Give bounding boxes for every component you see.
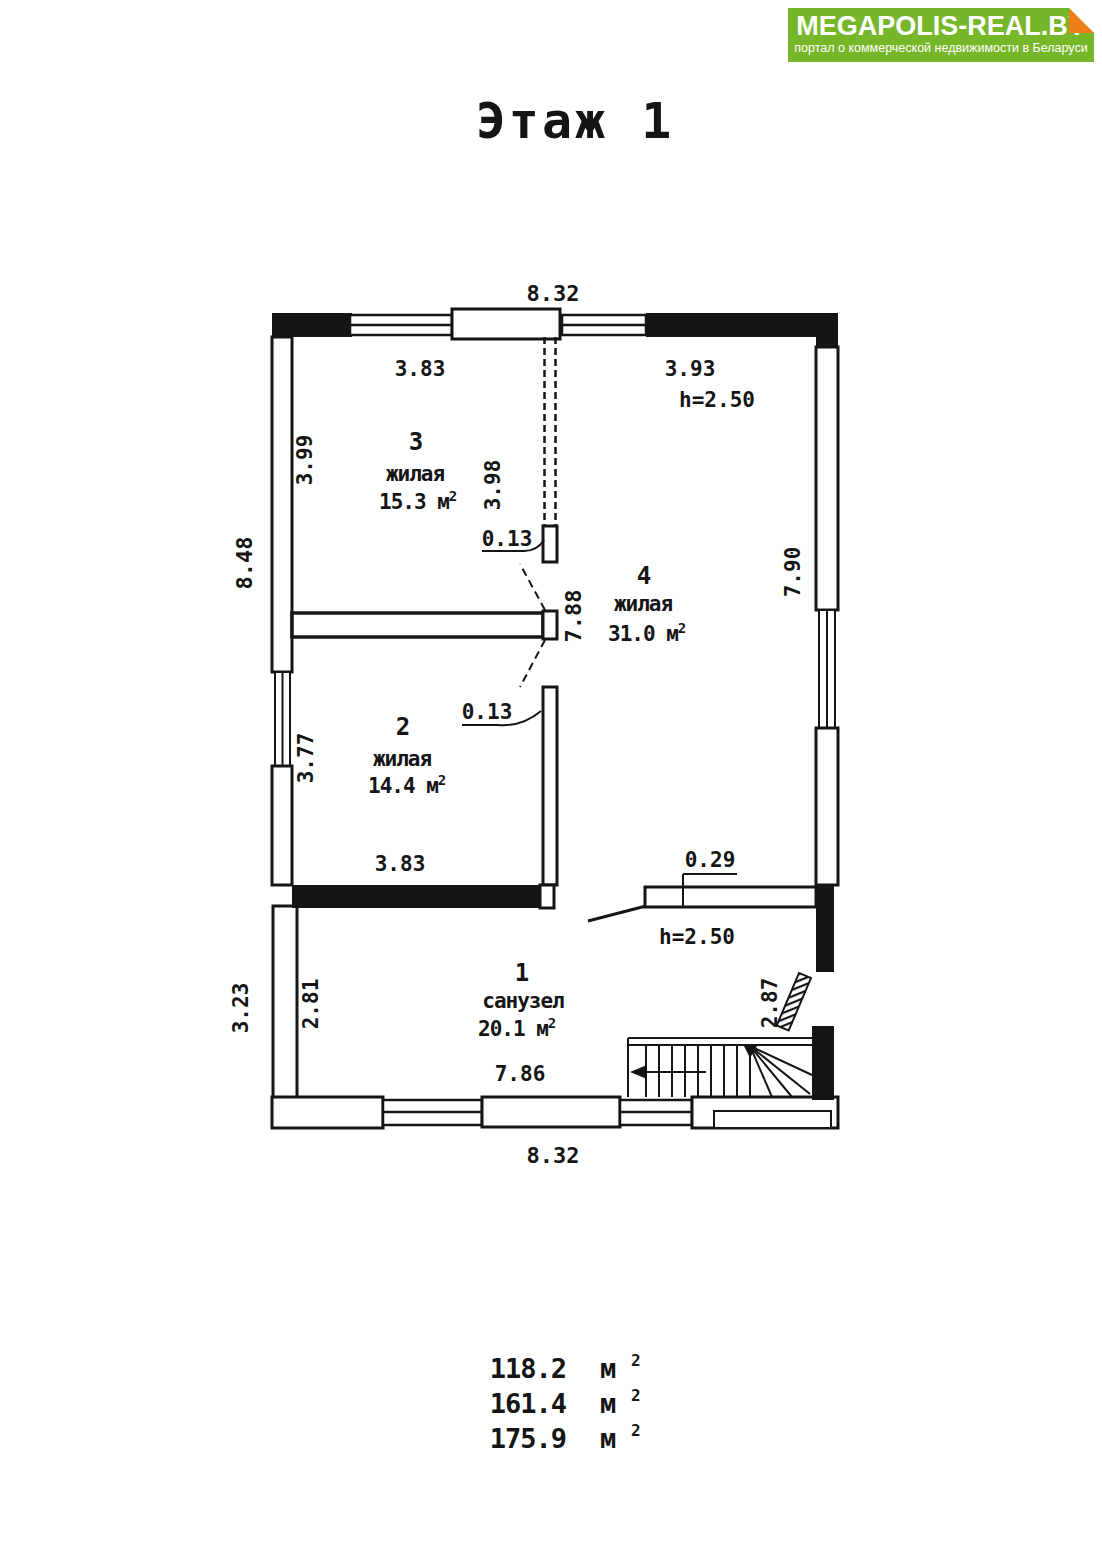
window <box>350 315 452 335</box>
window <box>562 315 646 335</box>
wall-segment <box>816 313 838 350</box>
wall-segment <box>714 1111 831 1128</box>
dim-r4-height: h=2.50 <box>679 388 755 412</box>
door-leaf <box>588 906 646 921</box>
dim-lower-left: 3.23 <box>229 983 253 1034</box>
window <box>275 672 290 768</box>
wall-segment <box>272 337 292 672</box>
total-unit: м <box>600 1353 616 1384</box>
room-3-label: 3 жилая 15.3 м2 <box>379 428 457 514</box>
room-number: 3 <box>409 428 423 456</box>
wall-segment <box>292 613 543 637</box>
dim-r4-top: 3.93 <box>665 357 716 381</box>
dim-r4-right: 7.90 <box>781 547 805 598</box>
room-area-value: 20.1 м <box>478 1017 548 1041</box>
interior-walls <box>292 337 816 921</box>
dim-r1-right: 2.87 <box>758 978 782 1029</box>
total-value: 175.9 <box>490 1423 566 1454</box>
window <box>383 1100 482 1125</box>
wall-segment <box>272 1097 383 1128</box>
room-area-value: 31.0 м <box>608 622 678 646</box>
dim-niche: 0.29 <box>685 848 736 872</box>
wall-segment <box>812 1026 834 1100</box>
room-4-label: 4 жилая 31.0 м2 <box>608 562 686 646</box>
room-number: 1 <box>515 959 529 987</box>
total-value: 118.2 <box>490 1353 566 1384</box>
winder-line <box>750 1046 792 1097</box>
dim-r1-height: h=2.50 <box>659 925 735 949</box>
window-opening <box>452 309 560 339</box>
brand-tagline: портал о коммерческой недвижимости в Бел… <box>788 41 1094 55</box>
room-number: 2 <box>396 713 410 741</box>
total-value: 161.4 <box>490 1388 567 1419</box>
partition-wall <box>543 687 557 885</box>
room-2-label: 2 жилая 14.4 м2 <box>368 713 446 798</box>
room-area-sup: 2 <box>449 488 457 504</box>
page-title: Этаж 1 <box>476 92 675 150</box>
room-area: 14.4 м2 <box>368 772 446 798</box>
wall-end-cap <box>543 611 557 639</box>
megapolis-logo-banner: MEGAPOLIS-REAL.BY портал о коммерческой … <box>788 8 1094 62</box>
direction-arrow-head <box>630 1065 647 1079</box>
wall-segment <box>645 887 816 907</box>
dim-r2-bottom: 3.83 <box>375 852 426 876</box>
window <box>819 610 835 730</box>
room-area-sup: 2 <box>678 620 686 636</box>
door-swing <box>520 564 545 610</box>
window <box>620 1100 692 1125</box>
room-area: 20.1 м2 <box>478 1015 556 1041</box>
dim-r1-width: 7.86 <box>495 1062 546 1086</box>
partition-dashed <box>545 337 556 526</box>
room-1-label: 1 санузел 20.1 м2 <box>478 959 564 1041</box>
wall-segment <box>646 313 838 337</box>
dim-r2-left: 3.77 <box>294 733 318 784</box>
door-swing <box>520 640 545 687</box>
room-area: 15.3 м2 <box>379 488 457 514</box>
wall-segment <box>272 766 292 885</box>
room-name: жилая <box>614 592 673 616</box>
total-row: 118.2 м 2 <box>490 1351 641 1384</box>
brand-name: MEGAPOLIS-REAL.BY <box>788 11 1094 41</box>
total-unit: м <box>600 1423 616 1454</box>
room-number: 4 <box>637 562 651 590</box>
dim-partition-t1: 0.13 <box>482 527 533 551</box>
dim-left-total: 8.48 <box>232 537 257 590</box>
wall-segment <box>816 728 838 885</box>
wall-segment <box>273 906 297 1100</box>
dim-partition-t2: 0.13 <box>462 700 513 724</box>
window-opening <box>482 1097 620 1127</box>
room-name: жилая <box>373 747 432 771</box>
dim-bottom: 8.32 <box>527 1143 580 1168</box>
floor-plan-drawing: Этаж 1 <box>0 0 1102 1552</box>
wall-segment <box>816 347 838 610</box>
room-area-sup: 2 <box>438 772 446 788</box>
wall-end-cap <box>540 885 554 908</box>
total-row: 161.4 м 2 <box>490 1386 641 1419</box>
total-sup: 2 <box>631 1386 641 1405</box>
wall-end-cap <box>543 526 557 562</box>
room-area-value: 15.3 м <box>379 490 449 514</box>
scanned-floor-plan-page: MEGAPOLIS-REAL.BY портал о коммерческой … <box>0 0 1102 1552</box>
room-name: санузел <box>482 989 564 1013</box>
wall-segment <box>292 885 540 908</box>
total-unit: м <box>600 1388 616 1419</box>
room-name: жилая <box>386 462 445 486</box>
wall-segment <box>816 885 834 972</box>
total-sup: 2 <box>631 1351 641 1370</box>
dim-r3-left: 3.99 <box>293 435 317 486</box>
total-sup: 2 <box>631 1421 641 1440</box>
dim-r3-partition: 3.98 <box>481 460 505 511</box>
total-row: 175.9 м 2 <box>490 1421 641 1454</box>
room-labels: 3 жилая 15.3 м2 4 жилая 31.0 м2 2 жилая … <box>368 428 686 1041</box>
dim-top: 8.32 <box>527 281 580 306</box>
room-area-sup: 2 <box>548 1015 556 1031</box>
room-area-value: 14.4 м <box>368 774 438 798</box>
room-area: 31.0 м2 <box>608 620 686 646</box>
dim-r1-left: 2.81 <box>299 979 323 1030</box>
dim-r3-top: 3.83 <box>395 357 446 381</box>
stairs <box>628 1038 812 1097</box>
total-areas: 118.2 м 2 161.4 м 2 175.9 м 2 <box>490 1351 641 1454</box>
dim-hall: 7.88 <box>561 590 586 643</box>
